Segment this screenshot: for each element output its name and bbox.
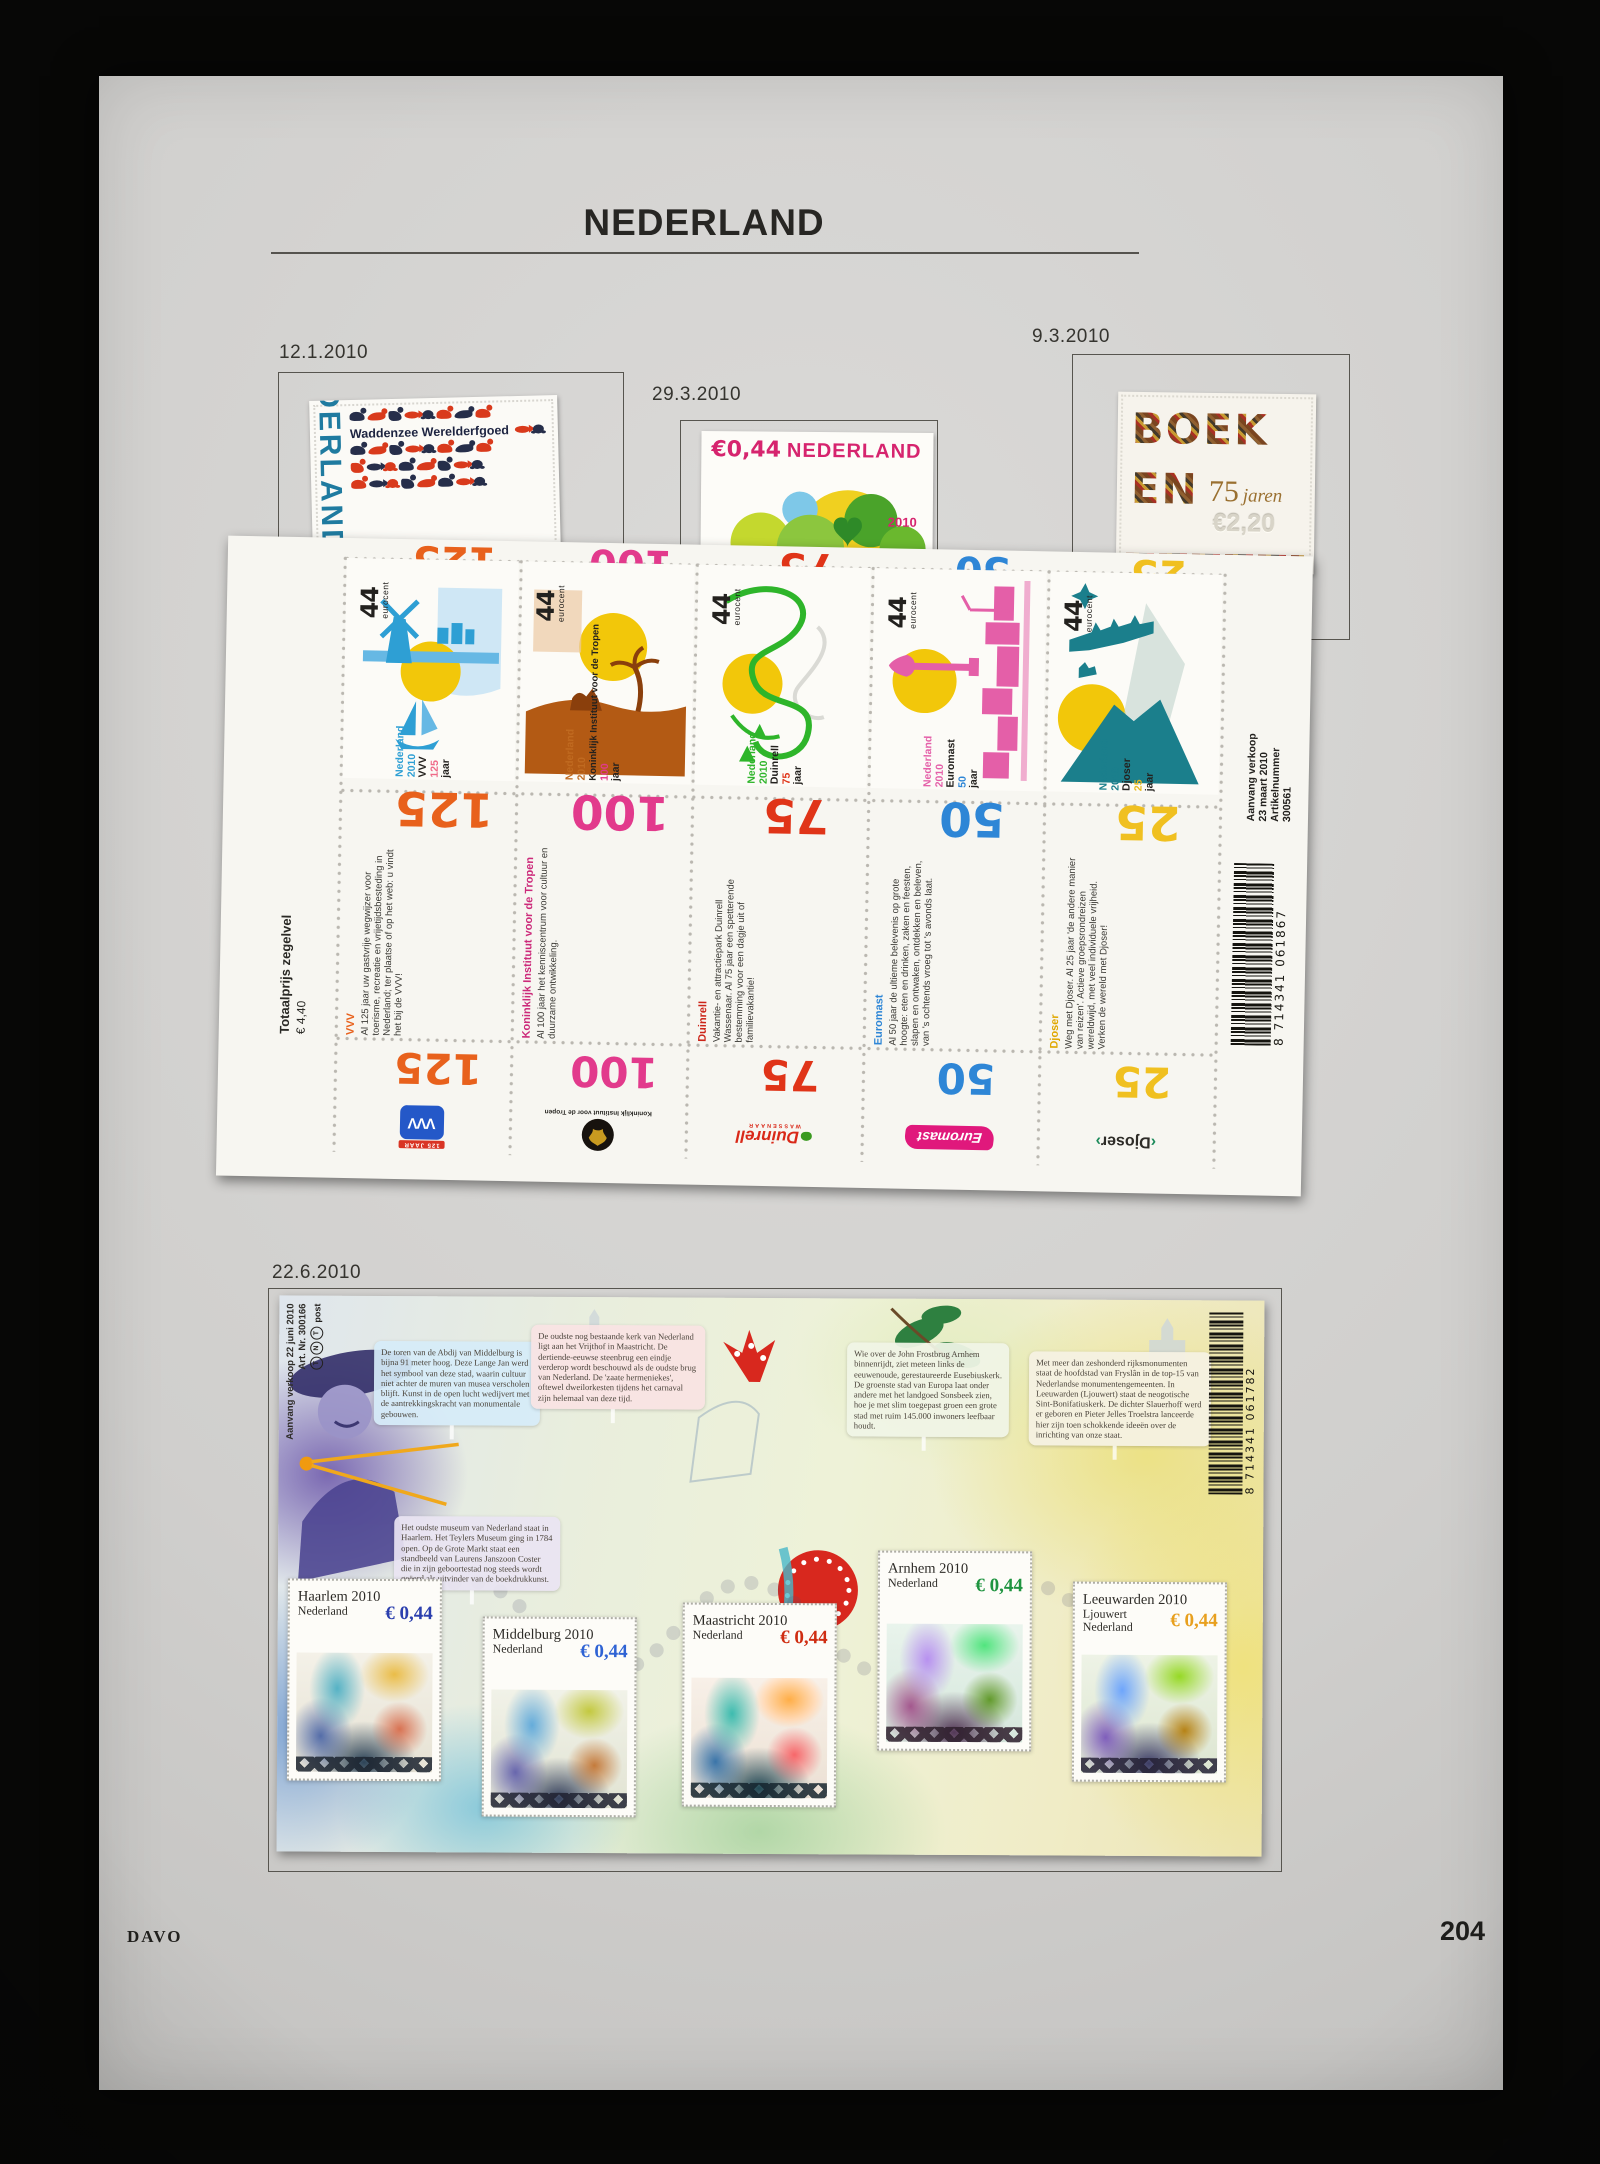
jubilee-column-euromast: 50 [861,548,1049,1191]
mid-number: 25 [1085,795,1210,849]
fauna-icon [515,426,530,433]
denomination-unit: eurocent [380,563,391,619]
fauna-icon [454,410,472,418]
spring-stamp: €0,44NEDERLAND 2010 [700,431,933,559]
city-value: € 0,44 [780,1627,828,1649]
bottom-number: 125 [373,1045,504,1091]
city-collage-art [491,1690,628,1808]
description-duinrell: Duinrell Vakantie- en attractiepark Duin… [698,848,814,1044]
note-maastricht: De oudste nog bestaande kerk van Nederla… [531,1325,705,1410]
denomination-value: 44 [1064,576,1085,632]
jubilee-stamp-tropen: 44eurocent Nederland 2010 Koninklijk Ins… [519,561,695,784]
margin-sale-line: Aanvang verkoop 22 juni 2010 [285,1303,298,1439]
jubilee-stamp-duinrell: 44eurocent Nederland 2010 Duinrell 75 ja… [695,565,871,788]
note-middelburg: De toren van de Abdij van Middelburg is … [374,1341,540,1426]
logo-duinrell: Duinrell WASSENAAR [703,1101,844,1168]
caption-jaar: jaar [793,685,806,785]
logo-euromast: Euromast [879,1104,1020,1171]
vvv-logo-tab: 125 JAAR [399,1141,445,1150]
description-title: Euromast [874,851,889,1045]
fauna-icon [399,462,414,471]
barcode-bars [1208,1312,1243,1494]
fauna-icon [454,461,469,468]
description-tropen: Koninklijk Instituut voor de Tropen Al 1… [522,844,638,1040]
fauna-icon [533,424,544,433]
fauna-icon [368,446,386,454]
fauna-icon [404,411,419,418]
stamp-caption: Nederland 2010 Djoser 25 jaar [1099,690,1159,791]
fauna-icon [437,444,452,453]
jubilee-stamp-euromast: 44eurocent Nederland 2010 Euromast 50 ja… [871,568,1047,791]
album-page: NEDERLAND 12.1.2010 NEDERLAND Waddenzee … [99,76,1503,2090]
tnt-circle-letter: N [310,1342,323,1355]
note-text: Het oudste museum van Nederland staat in… [401,1522,553,1585]
city-stamp-header: Haarlem 2010 Nederland € 0,44 [290,1580,440,1618]
note-text: Wie over de John Frostbrug Arnhem binnen… [854,1348,1002,1431]
caption-jaar: jaar [969,688,982,788]
denomination: 44eurocent [536,566,567,623]
city-collage-art [691,1678,828,1799]
description-euromast: Euromast Al 50 jaar de ultieme belevenis… [874,851,990,1047]
denomination-value: 44 [360,562,381,618]
boeken-anniversary-number: 75 [1209,475,1239,508]
city-collage-art [1081,1655,1218,1773]
tnt-word: post [312,1304,322,1323]
jubilee-stamp-djoser: 44eurocent Nederland 2010 Djoser 25 jaar [1046,571,1222,794]
fauna-row [351,471,551,493]
fauna-icon [474,477,485,486]
logo-tropen: Koninklijk Instituut voor de Tropen [527,1098,668,1165]
tnt-post-logo: T N T post [310,1304,323,1370]
jubilee-sheet: Totaalprijs zegelvel € 4,40 125 [216,536,1313,1197]
denomination-unit: eurocent [908,573,919,629]
mid-number: 50 [909,792,1034,846]
city-stamp-header: Middelburg 2010 Nederland € 0,44 [485,1619,635,1657]
mid-number: 100 [558,785,683,839]
fauna-icon [369,480,384,487]
tnt-circle-letter: T [310,1327,323,1340]
fauna-icon [349,412,364,421]
city-collage-art [886,1624,1023,1742]
city-stamp-haarlem: Haarlem 2010 Nederland € 0,44 [287,1578,442,1781]
denomination-value: 44 [536,566,557,622]
fauna-icon [385,462,396,471]
note-arnhem: Wie over de John Frostbrug Arnhem binnen… [847,1342,1009,1437]
boeken-anniversary-word: jaren [1243,485,1283,507]
tnt-circle-letter: T [310,1357,323,1370]
description-text: Weg met Djoser. Al 25 jaar 'de andere ma… [1063,855,1111,1050]
description-title: Djoser [1050,855,1065,1049]
waddenzee-stamp: NEDERLAND Waddenzee Werelderfgoed [309,395,561,557]
bottom-number: 50 [901,1055,1032,1101]
fauna-icon [401,478,414,488]
jubilee-column-vvv: 125 44eurocent N [333,538,521,1181]
bottom-number: 75 [725,1051,856,1097]
city-stamp-middelburg: Middelburg 2010 Nederland € 0,44 [482,1616,637,1817]
boeken-anniversary: 75 jaren [1209,475,1283,510]
fauna-icon [388,410,401,420]
jubilee-column-tropen: 100 44eurocent Nederland 2010 [509,541,697,1184]
fauna-icon [475,409,490,418]
fauna-icon [455,444,473,452]
description-djoser: Djoser Weg met Djoser. Al 25 jaar 'de an… [1050,855,1166,1051]
barcode-jubilee: 8 714341 061867 [1231,863,1298,1046]
price-label: Totaalprijs zegelvel [277,840,296,1034]
margin-article-line: Art. Nr. 300166 [297,1304,309,1370]
boeken-word-bottom: EN [1131,470,1199,509]
city-stamp-leeuwarden: Leeuwarden 2010 Ljouwert Nederland € 0,4… [1072,1582,1227,1783]
djoser-chevron-right-icon: › [1095,1132,1101,1149]
description-title: VVV [346,841,361,1035]
fauna-rows: Waddenzee Werelderfgoed [349,403,551,493]
frog-icon [801,1132,812,1141]
jubilee-column-djoser: 25 44eurocent Neder [1037,551,1225,1194]
jubilee-column-duinrell: 75 44eurocent Nederland 2010 Duinrel [685,545,873,1188]
denomination-unit: eurocent [1084,576,1095,632]
price-value: € 4,40 [294,840,312,1034]
denomination-unit: eurocent [732,569,743,625]
spring-stamp-header: €0,44NEDERLAND [711,437,921,464]
note-text: Met meer dan zeshonderd rijksmonumenten … [1036,1357,1204,1440]
nederland-vertical-text: NEDERLAND [312,395,349,555]
issue-date-spring: 29.3.2010 [652,384,741,406]
fauna-icon [387,479,398,488]
description-text: Al 125 jaar uw gastvrije wegwijzer voor … [359,841,407,1036]
fauna-icon [417,462,435,470]
city-sheet-margin: Aanvang verkoop 22 juni 2010 Art. Nr. 30… [284,1303,327,1555]
sale-info: Aanvang verkoop 23 maart 2010 Artikelnum… [1245,697,1297,822]
fauna-icon [436,410,451,419]
boeken-word-top: BOEK [1131,410,1268,450]
spring-value: €0,44 [711,437,781,463]
spring-country: NEDERLAND [787,440,922,463]
city-stamp-header: Leeuwarden 2010 Ljouwert Nederland € 0,4… [1075,1584,1225,1635]
fauna-icon [472,460,483,469]
stamp-caption: Nederland 2010 Koninklijk Instituut voor… [565,590,627,781]
fauna-icon [351,462,364,472]
jubilee-stamp-vvv: 44eurocent Nederland 2010 VVV 125 jaar [343,558,519,781]
description-vvv: VVV Al 125 jaar uw gastvrije wegwijzer v… [346,841,462,1037]
fauna-icon [417,478,435,486]
djoser-logo-name: Djoser [1101,1133,1151,1151]
fauna-icon [389,444,402,454]
fauna-icon [350,446,365,455]
caption-jaar: jaar [441,678,454,778]
fauna-icon [476,443,491,452]
fauna-icon [438,478,453,487]
davo-imprint: DAVO [127,1927,183,1947]
djoser-chevron-left-icon: ‹ [1151,1133,1157,1150]
fauna-icon [422,410,433,419]
issue-date-city-sheet: 22.6.2010 [272,1262,361,1284]
denomination: 44eurocent [1064,576,1095,633]
mid-number: 75 [733,788,858,842]
fauna-icon [367,412,385,420]
fauna-icon [405,445,420,452]
djoser-logo-text: ‹Djoser› [1095,1131,1156,1150]
vvv-logo-icon: VVV [400,1106,445,1141]
duinrell-logo-text: Duinrell [735,1128,812,1146]
fauna-icon [438,460,451,470]
barcode-digits: 8 714341 061782 [1243,1312,1257,1494]
caption-jaar: jaar [1145,691,1158,791]
denomination-value: 44 [888,572,909,628]
barcode-bars [1231,863,1274,1046]
title-rule [271,252,1139,254]
page-number: 204 [1415,1916,1485,1947]
bottom-number: 100 [549,1048,680,1094]
fauna-icon [456,478,471,485]
spring-year: 2010 [888,515,917,530]
fauna-icon [367,463,382,470]
duinrell-logo-sub: WASSENAAR [747,1122,801,1129]
logo-djoser: ‹Djoser› [1055,1108,1196,1175]
fauna-icon [423,444,434,453]
city-stamp-header: Arnhem 2010 Nederland € 0,44 [880,1553,1030,1591]
boeken-stamp: BOEK EN 75 jaren €2,20 [1116,392,1316,575]
city-value: € 0,44 [975,1575,1023,1597]
tropen-logo-caption: Koninklijk Instituut voor de Tropen [532,1108,664,1118]
sale-line: 300561 [1281,698,1295,822]
denomination: 44eurocent [888,572,919,629]
denomination: 44eurocent [360,562,391,619]
stamp-caption: Nederland 2010 Euromast 50 jaar [923,687,983,788]
city-sheet: Aanvang verkoop 22 juni 2010 Art. Nr. 30… [277,1295,1265,1856]
description-title: Koninklijk Instituut voor de Tropen [522,844,537,1038]
city-value: € 0,44 [385,1603,433,1625]
barcode-city-sheet: 8 714341 061782 [1208,1312,1259,1494]
duinrell-logo-name: Duinrell [735,1127,799,1147]
city-stamp-maastricht: Maastricht 2010 Nederland € 0,44 [682,1603,837,1808]
stamp-caption: Nederland 2010 VVV 125 jaar [395,677,455,778]
city-stamp-header: Maastricht 2010 Nederland € 0,44 [685,1605,835,1643]
page-title: NEDERLAND [269,202,1139,244]
description-title: Duinrell [698,848,713,1042]
city-value: € 0,44 [1170,1610,1218,1632]
description-text: Vakantie- en attractiepark Duinrell Wass… [711,848,759,1043]
mid-number: 125 [382,782,507,836]
tropen-logo-icon [580,1118,615,1153]
city-collage-art [296,1653,433,1773]
description-text: Al 100 jaar het kenniscentrum voor cultu… [535,845,561,1039]
city-value: € 0,44 [580,1641,628,1663]
issue-date-boeken: 9.3.2010 [1032,326,1110,348]
bottom-number: 25 [1077,1058,1208,1104]
city-stamp-arnhem: Arnhem 2010 Nederland € 0,44 [877,1551,1032,1752]
issue-date-waddenzee: 12.1.2010 [279,342,368,364]
note-text: De oudste nog bestaande kerk van Nederla… [538,1331,698,1404]
price-block: Totaalprijs zegelvel € 4,40 [277,840,325,1035]
euromast-logo-banner: Euromast [904,1125,996,1151]
logo-vvv: 125 JAAR VVV [351,1094,492,1161]
barcode-digits: 8 714341 061867 [1272,864,1289,1046]
denomination-value: 44 [712,569,733,625]
stamp-caption: Nederland 2010 Duinrell 75 jaar [747,684,807,785]
note-text: De toren van de Abdij van Middelburg is … [381,1347,533,1420]
boeken-value: €2,20 [1212,509,1275,539]
description-text: Al 50 jaar de ultieme belevenis op grote… [887,851,935,1046]
denomination-unit: eurocent [556,566,567,622]
fauna-icon [351,480,366,489]
note-leeuwarden: Met meer dan zeshonderd rijksmonumenten … [1029,1351,1211,1446]
denomination: 44eurocent [712,569,743,626]
